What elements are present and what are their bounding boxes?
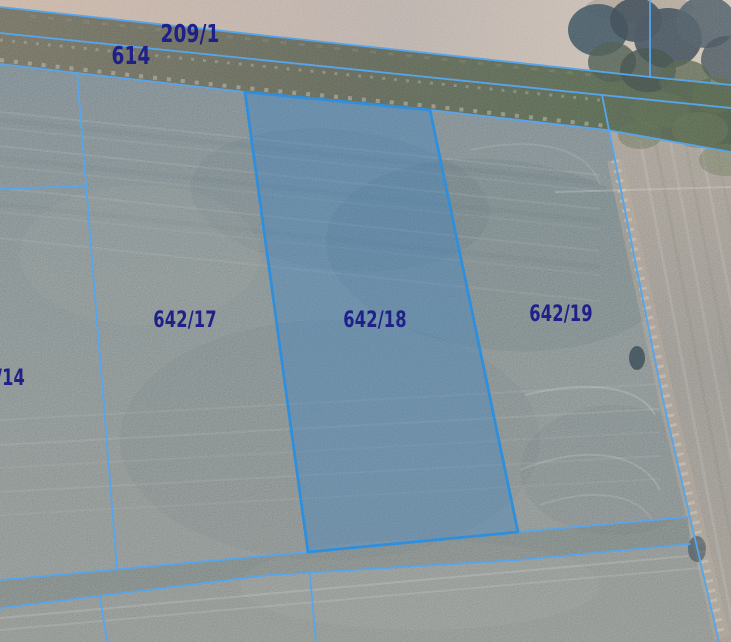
parcel-label-3-partial: 3 — [0, 571, 1, 597]
parcel-label-209-1: 209/1 — [161, 20, 220, 48]
parcel-label-642-17: 642/17 — [153, 307, 216, 333]
cadastral-map-svg: 209/1 614 642/17 642/18 642/19 /14 3 — [0, 0, 731, 642]
parcel-label-642-18: 642/18 — [343, 307, 406, 333]
parcel-label-642-19: 642/19 — [529, 301, 592, 327]
map-canvas[interactable]: 209/1 614 642/17 642/18 642/19 /14 3 — [0, 0, 731, 642]
parcel-label-14-partial: /14 — [0, 365, 25, 391]
parcel-label-614: 614 — [111, 42, 150, 70]
